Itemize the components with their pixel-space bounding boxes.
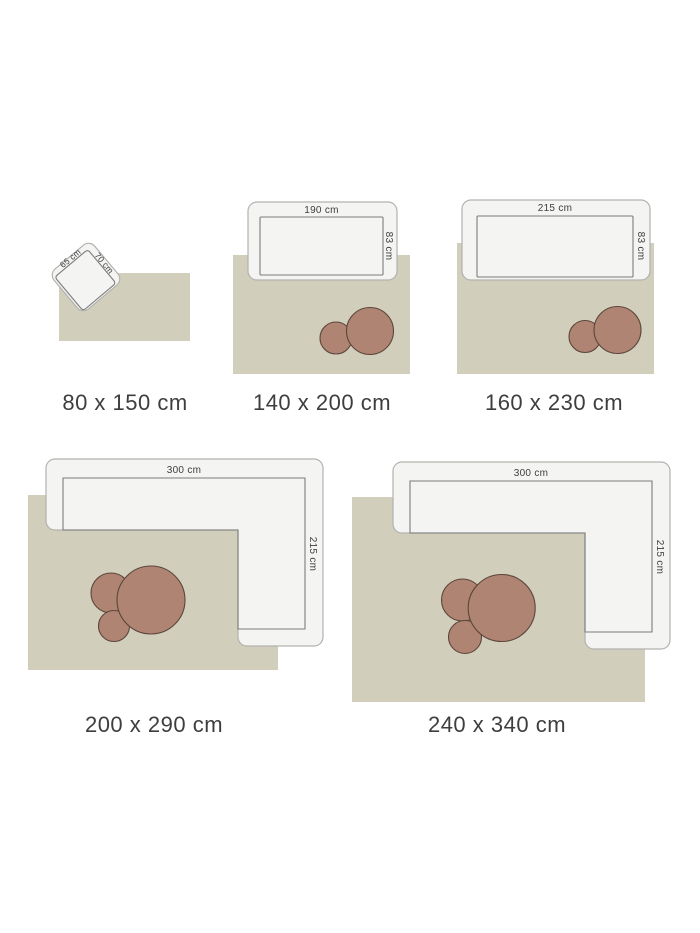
diagram-140x200-drawing: 190 cm 83 cm	[225, 195, 415, 380]
size-diagram-240x340: 300 cm 215 cm 240 x 340 cm	[345, 450, 680, 740]
ottoman-large	[594, 307, 641, 354]
sofa-width-label: 190 cm	[304, 205, 339, 216]
corner-sofa-width-label: 300 cm	[514, 468, 549, 479]
corner-sofa-depth-label: 215 cm	[307, 537, 318, 572]
ottoman-large	[468, 575, 535, 642]
size-diagram-160x230: 215 cm 83 cm 160 x 230 cm	[448, 193, 668, 420]
sofa-depth-label: 83 cm	[635, 232, 646, 261]
size-label: 160 x 230 cm	[469, 390, 639, 416]
sofa-icon: 190 cm 83 cm	[248, 202, 397, 280]
size-label: 200 x 290 cm	[69, 712, 239, 738]
ottoman-large	[347, 308, 394, 355]
diagram-80x150-drawing: 65 cm 70 cm	[40, 232, 195, 347]
corner-sofa-width-label: 300 cm	[167, 465, 202, 476]
sofa-depth-label: 83 cm	[383, 232, 394, 261]
diagram-160x230-drawing: 215 cm 83 cm	[450, 193, 665, 378]
size-diagram-140x200: 190 cm 83 cm 140 x 200 cm	[225, 195, 420, 420]
size-diagram-80x150: 65 cm 70 cm 80 x 150 cm	[25, 230, 225, 420]
corner-sofa-depth-label: 215 cm	[654, 540, 665, 575]
sofa-icon: 215 cm 83 cm	[462, 200, 650, 280]
rug-size-guide: 65 cm 70 cm 80 x 150 cm 190 cm 83 cm 140…	[0, 0, 700, 933]
ottoman-large	[117, 566, 185, 634]
size-label: 240 x 340 cm	[412, 712, 582, 738]
size-diagram-200x290: 300 cm 215 cm 200 x 290 cm	[20, 450, 330, 740]
size-label: 140 x 200 cm	[237, 390, 407, 416]
sofa-width-label: 215 cm	[538, 203, 573, 214]
diagram-240x340-drawing: 300 cm 215 cm	[345, 450, 680, 710]
diagram-200x290-drawing: 300 cm 215 cm	[20, 450, 330, 680]
size-label: 80 x 150 cm	[25, 390, 225, 416]
